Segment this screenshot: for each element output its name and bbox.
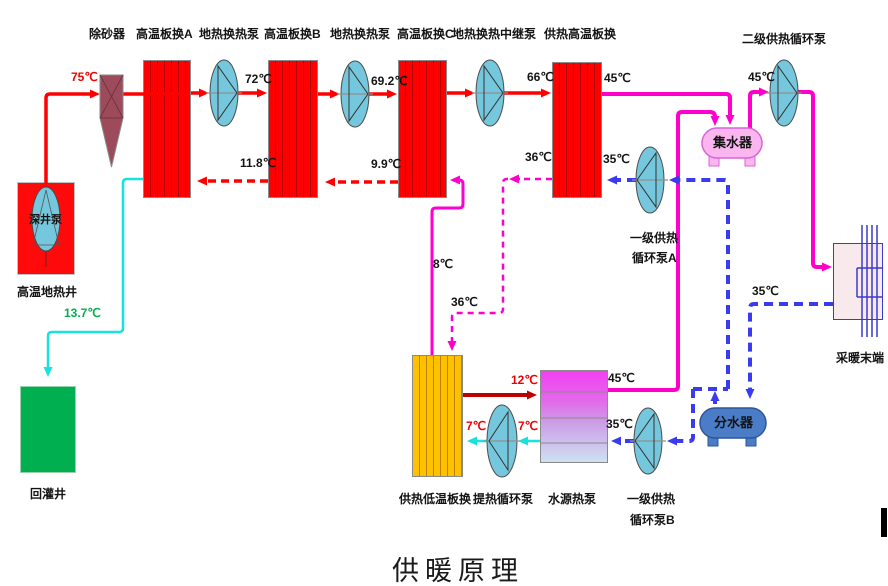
heat-extraction-pump-label: 提热循环泵 bbox=[473, 492, 533, 506]
temp-to-secondary-pump: 45℃ bbox=[748, 71, 775, 84]
reinjection-pipes bbox=[48, 179, 540, 441]
primary-pump-b-label-1: 一级供热 bbox=[627, 492, 675, 506]
temp-ht-hx-return-in: 35℃ bbox=[603, 153, 630, 166]
temp-after-hx-b: 69.2℃ bbox=[371, 75, 408, 88]
water-distributor-label: 分水器 bbox=[714, 416, 753, 430]
primary-pump-b-label-2: 循环泵B bbox=[630, 513, 675, 527]
water-source-heat-pump-label: 水源热泵 bbox=[548, 492, 596, 506]
temp-terminal-return: 35℃ bbox=[752, 285, 779, 298]
temp-after-hx-a: 72℃ bbox=[245, 73, 272, 86]
heating-terminal-coil bbox=[857, 225, 883, 337]
heating-lt-hx-label: 供热低温板换 bbox=[399, 492, 471, 506]
geo-pump-2-label: 地热换热泵 bbox=[330, 27, 390, 41]
primary-pump-a-label-2: 循环泵A bbox=[632, 251, 677, 265]
geo-pump-2-icon bbox=[337, 61, 373, 127]
hx-b-label: 高温板换B bbox=[264, 27, 321, 41]
temp-well-supply: 75℃ bbox=[71, 71, 98, 84]
hx-a-label: 高温板换A bbox=[136, 27, 193, 41]
deep-well-pump-label: 深井泵 bbox=[29, 213, 62, 227]
temp-lt-hx-in-after-pump: 7℃ bbox=[466, 420, 486, 433]
heating-terminal-label: 采暖末端 bbox=[836, 351, 884, 365]
heating-principle-diagram: 除砂器 高温板换A 地热换热泵 高温板换B 地热换热泵 高温板换C 地热换热中继… bbox=[0, 0, 888, 586]
temp-return-to-hx-a: 11.8℃ bbox=[240, 157, 276, 170]
sand-remover-icon bbox=[100, 75, 123, 167]
temp-ht-hx-return-out: 36℃ bbox=[525, 151, 552, 164]
geo-pump-1-icon bbox=[206, 60, 242, 126]
temp-return-to-hx-b: 9.9℃ bbox=[371, 158, 401, 171]
sand-remover-label: 除砂器 bbox=[89, 27, 125, 41]
reinjection-well-label: 回灌井 bbox=[30, 487, 66, 501]
primary-pump-a-icon bbox=[632, 147, 668, 213]
temp-wshp-supply-out: 45℃ bbox=[608, 372, 635, 385]
temp-reinjection: 13.7℃ bbox=[64, 307, 101, 320]
primary-pump-b-icon bbox=[630, 408, 666, 474]
hx-c-label: 高温板换C bbox=[397, 27, 454, 41]
geo-relay-pump-label: 地热换热中继泵 bbox=[452, 27, 536, 41]
geo-pump-1-label: 地热换热泵 bbox=[199, 27, 259, 41]
geothermal-well-label: 高温地热井 bbox=[17, 285, 77, 299]
wshp-section-lines bbox=[540, 392, 608, 443]
geo-relay-pump-icon bbox=[472, 60, 508, 126]
temp-to-lt-hx: 36℃ bbox=[451, 296, 478, 309]
heating-ht-hx-label: 供热高温板换 bbox=[544, 27, 616, 41]
primary-pump-a-label-1: 一级供热 bbox=[630, 231, 678, 245]
heating-return-35-pipes bbox=[616, 180, 833, 441]
water-collector-label: 集水器 bbox=[713, 136, 752, 150]
heat-extraction-pump-icon bbox=[484, 405, 520, 477]
geothermal-return-pipes bbox=[206, 181, 398, 182]
temp-lt-hx-in-before-pump: 7℃ bbox=[518, 420, 538, 433]
temp-to-hx-c: 8℃ bbox=[433, 258, 453, 271]
temp-after-hx-c: 66℃ bbox=[527, 71, 554, 84]
diagram-title: 供暖原理 bbox=[392, 549, 524, 586]
temp-wshp-return-in: 35℃ bbox=[606, 418, 633, 431]
temp-lt-hx-out: 12℃ bbox=[511, 374, 538, 387]
temp-ht-hx-supply-out: 45℃ bbox=[604, 72, 631, 85]
secondary-heating-pump-label: 二级供热循环泵 bbox=[742, 32, 826, 46]
heating-return-36-pipes bbox=[452, 179, 552, 342]
